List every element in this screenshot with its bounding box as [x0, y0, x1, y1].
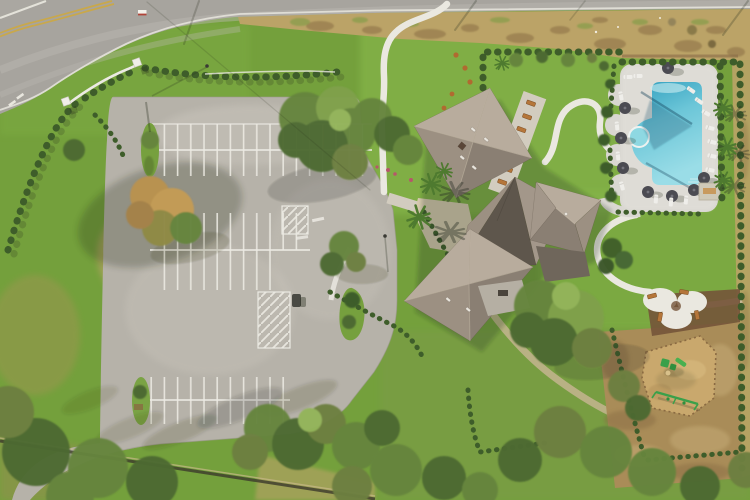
pool-umbrella: [642, 186, 654, 198]
shoulder-shrub: [687, 25, 697, 35]
pool-lounger: [669, 197, 674, 206]
pool-umbrella: [617, 162, 629, 174]
roof-vent: [564, 212, 567, 215]
pool-umbrella: [615, 132, 627, 144]
aerial-photo: [0, 0, 750, 500]
pool-lounger: [616, 151, 621, 160]
pool-lounger: [654, 194, 659, 203]
small-tree: [63, 139, 85, 161]
pool-lounger: [615, 121, 620, 130]
roadside-sign: [138, 10, 147, 15]
shoulder-shrub: [668, 18, 676, 26]
pool-lounger: [634, 74, 643, 78]
pool-lounger: [624, 75, 633, 79]
aerial-photo-canvas: [0, 0, 750, 500]
doorway: [498, 290, 508, 296]
pool-umbrella: [688, 184, 700, 196]
hedge-east-perimeter: [740, 64, 742, 468]
shoulder-shrub: [708, 40, 716, 48]
pool-lounger: [684, 195, 689, 204]
pool-umbrella: [619, 102, 631, 114]
pool-area: [598, 62, 720, 212]
pool-umbrella: [698, 172, 710, 184]
